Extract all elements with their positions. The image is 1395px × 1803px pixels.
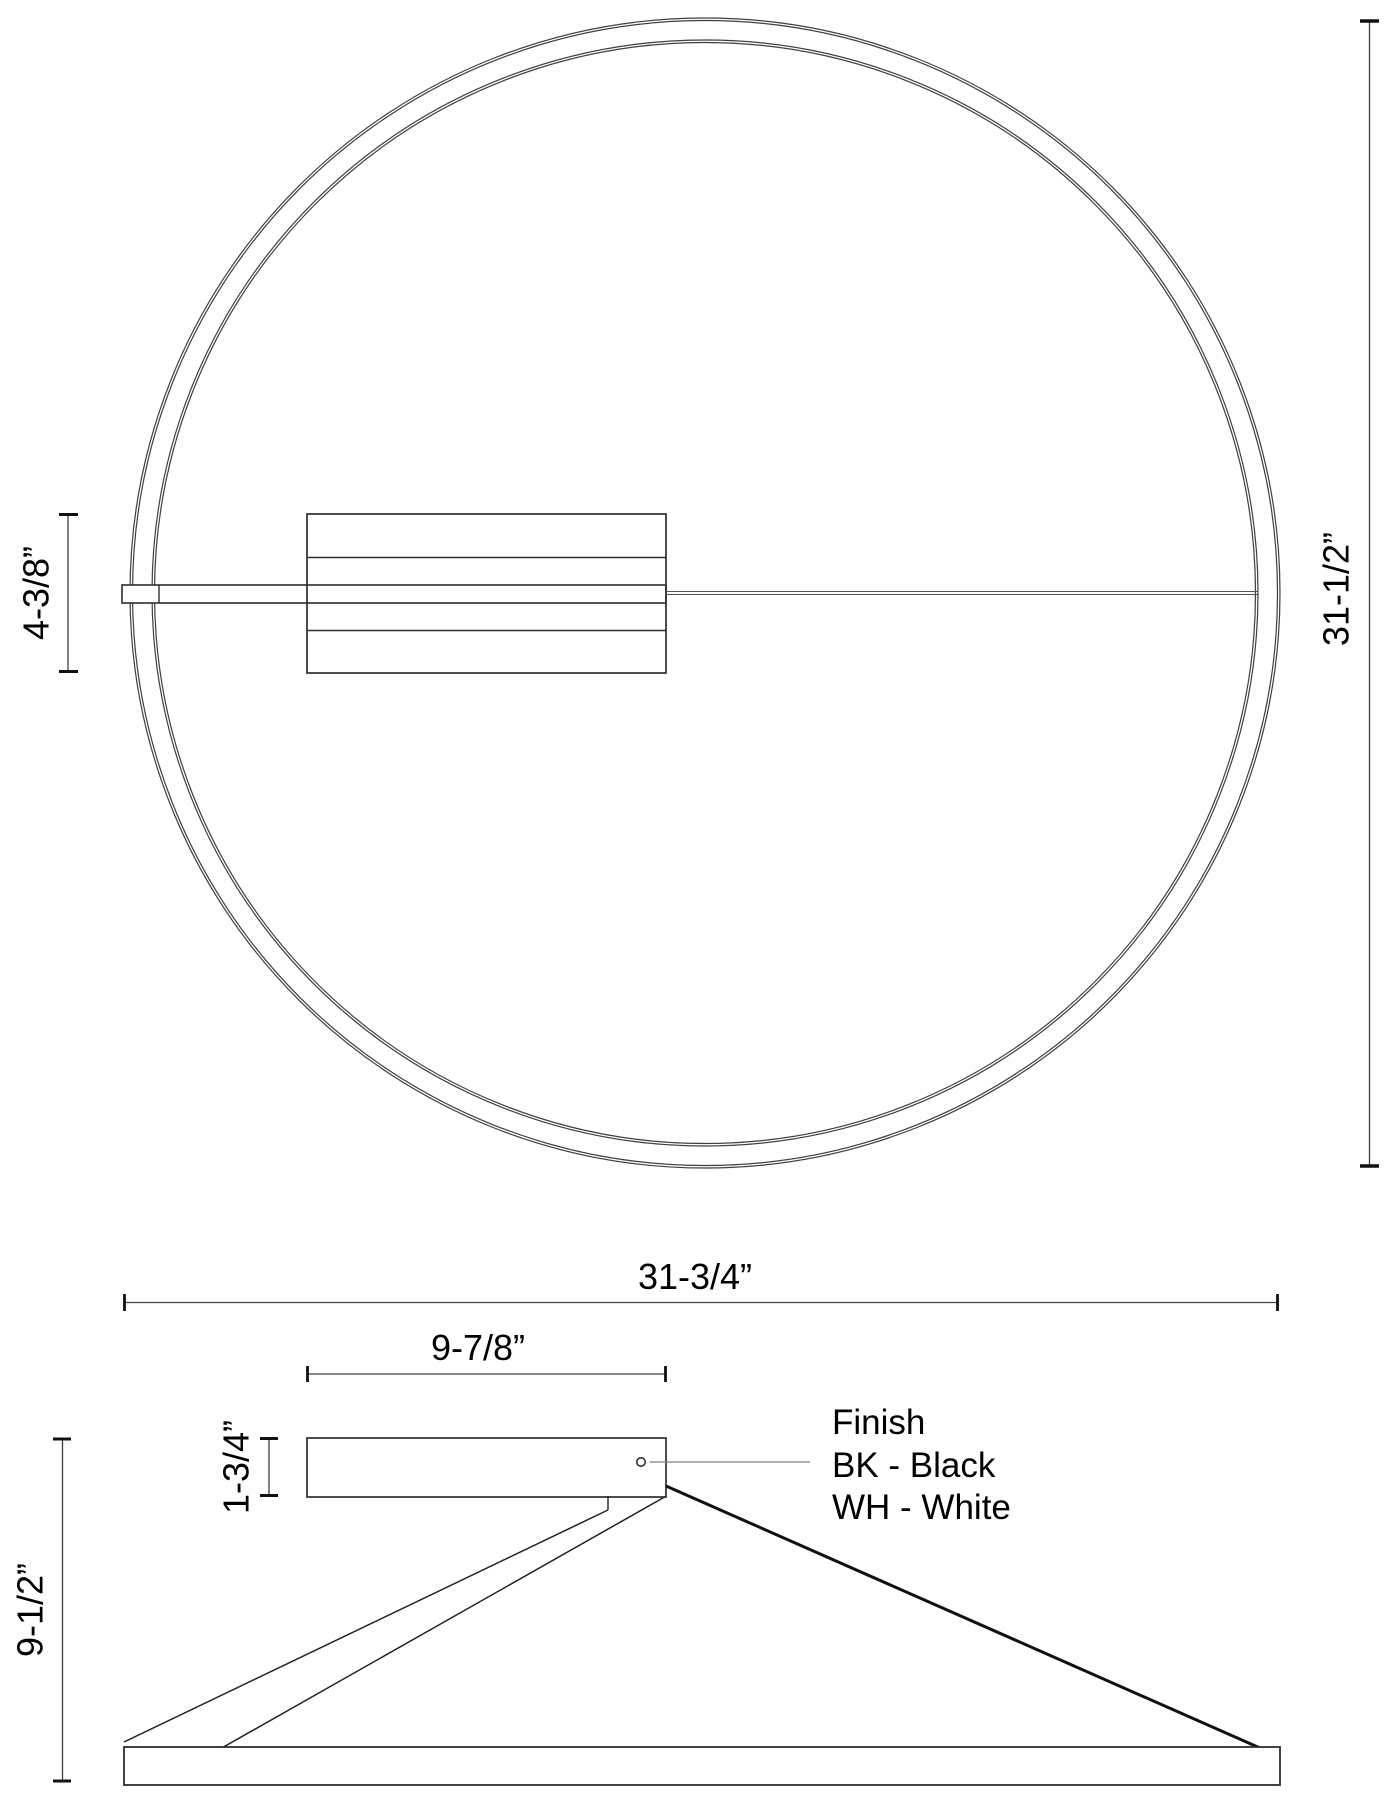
dim-overall-height-label: 9-1/2” bbox=[10, 1563, 51, 1657]
finish-note: Finish BK - Black WH - White bbox=[832, 1403, 1011, 1527]
dim-plate-height-label: 4-3/8” bbox=[16, 546, 57, 640]
canopy-screw-circle bbox=[637, 1458, 645, 1466]
side-view: 31-3/4” 9-7/8” Finish BK - Black bbox=[10, 1256, 1281, 1785]
dim-overall-height: 9-1/2” bbox=[10, 1438, 72, 1782]
dim-canopy-width: 9-7/8” bbox=[307, 1327, 666, 1382]
finish-option-white: WH - White bbox=[832, 1488, 1011, 1527]
dim-canopy-height-label: 1-3/4” bbox=[216, 1420, 257, 1514]
dim-canopy-width-label: 9-7/8” bbox=[431, 1327, 525, 1368]
left-arm-lower-edge bbox=[160, 1497, 666, 1784]
ring-edge-bar bbox=[124, 1747, 1280, 1785]
left-arm-upper-edge bbox=[124, 1510, 608, 1742]
canopy-side-box bbox=[307, 1438, 666, 1497]
mounting-arm-bar bbox=[122, 585, 666, 603]
finish-title: Finish bbox=[832, 1403, 925, 1442]
dim-ring-diameter-label: 31-1/2” bbox=[1316, 532, 1357, 646]
technical-drawing-canvas: 4-3/8” 31-1/2” 31-3/4” 9-7/8” bbox=[0, 0, 1395, 1803]
dim-ring-diameter: 31-1/2” bbox=[1316, 20, 1380, 1167]
finish-option-black: BK - Black bbox=[832, 1446, 996, 1485]
dim-overall-width: 31-3/4” bbox=[124, 1256, 1278, 1311]
dim-overall-width-label: 31-3/4” bbox=[638, 1256, 752, 1297]
top-view: 4-3/8” 31-1/2” bbox=[16, 18, 1380, 1168]
drawing-svg: 4-3/8” 31-1/2” 31-3/4” 9-7/8” bbox=[0, 0, 1395, 1803]
dim-plate-height: 4-3/8” bbox=[16, 514, 79, 672]
dim-canopy-height: 1-3/4” bbox=[216, 1420, 279, 1514]
